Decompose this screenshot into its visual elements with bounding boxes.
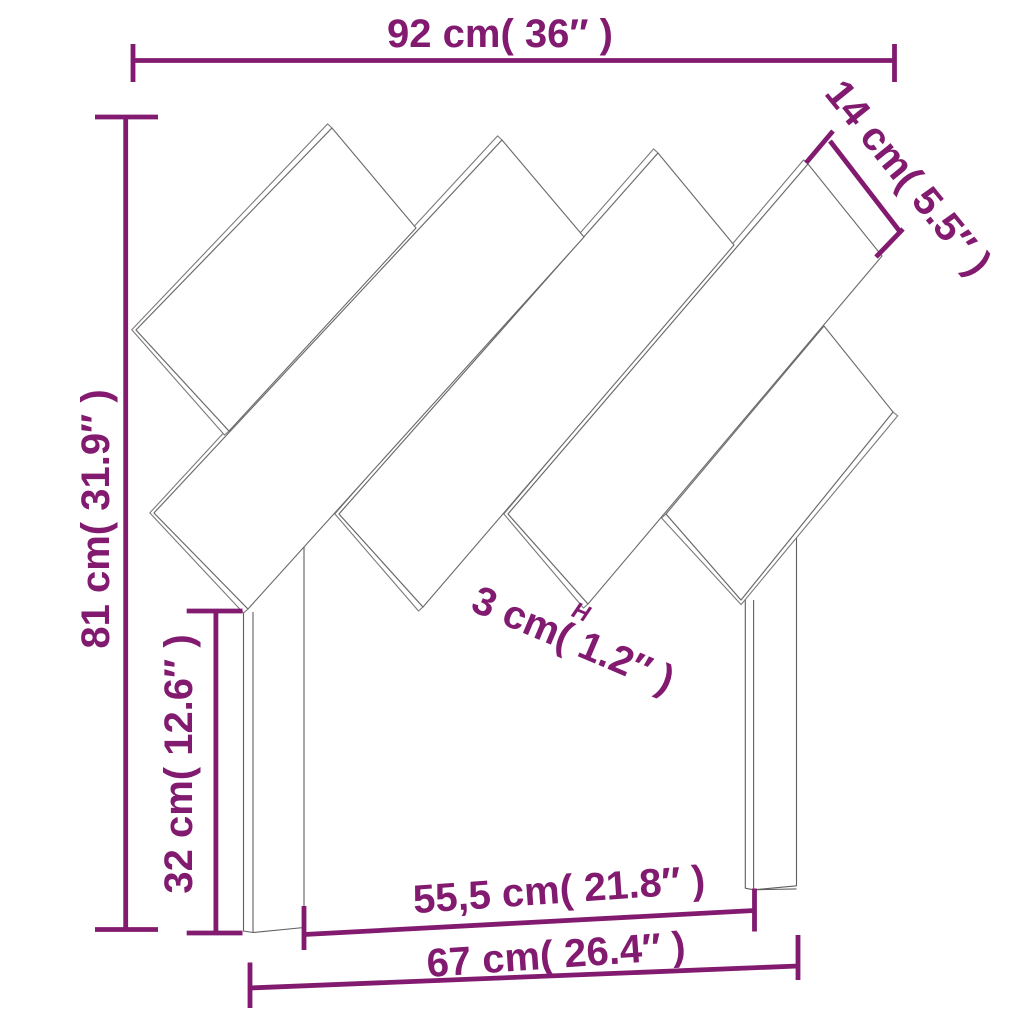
svg-text:32 cm( 12.6″ ): 32 cm( 12.6″ )	[157, 634, 201, 893]
svg-text:92 cm( 36″ ): 92 cm( 36″ )	[387, 12, 613, 56]
svg-text:81 cm( 31.9″ ): 81 cm( 31.9″ )	[74, 389, 118, 648]
